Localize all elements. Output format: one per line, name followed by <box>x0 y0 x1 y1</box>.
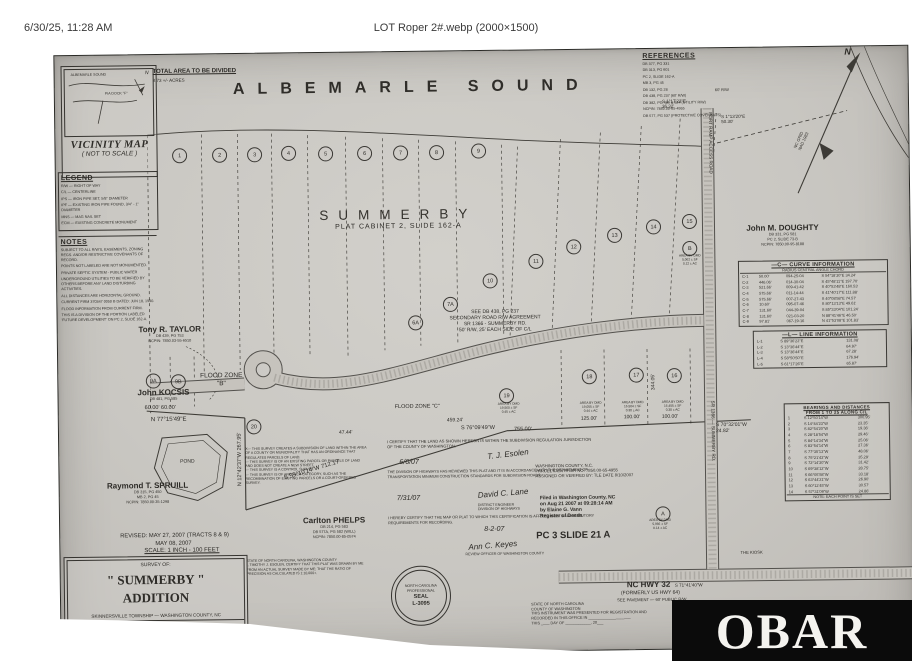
lot-circle: 8 <box>429 145 444 160</box>
surveyor-license: PROFESSIONAL LAND SURVEYOR L-3095 <box>68 633 244 640</box>
annotation: 60' R/W <box>715 88 729 93</box>
annotation: FLOOD ZONE "B" <box>190 372 252 389</box>
note-item: PRIVATE SEPTIC SYSTEM - PUBLIC WATER <box>61 270 155 276</box>
lot-circle: 10 <box>483 273 498 288</box>
lot-circle: 9 <box>471 143 486 158</box>
north-label: N <box>844 47 851 58</box>
annotation: S 1°17'23"E 36.32' <box>662 99 686 110</box>
annotation: FLOOD ZONE "C" <box>395 404 440 411</box>
notes-title: NOTES <box>61 238 155 246</box>
centerline-table: BEARINGS AND DISTANCES FROM 1 TO 25 ALON… <box>784 402 891 501</box>
annotation: N 12°42'37"W 267.95' <box>236 414 244 504</box>
references-title: REFERENCES <box>642 51 794 60</box>
subdivision-name: " SUMMERBY " <box>68 571 244 589</box>
vicinity-road-label: PIA DOCK "F" <box>105 91 128 95</box>
lot-circle: 6 <box>357 146 372 161</box>
annotation: DISTRICT ENGINEER DIVISION OF HIGHWAYS <box>478 503 520 512</box>
John KOCSIS: John KOCSIS DB 481, PG 585 <box>113 387 213 402</box>
vicinity-map-title: VICINITY MAP <box>64 139 154 151</box>
lot-circle: 20 <box>246 419 261 434</box>
annotation: N 77°15'49"E <box>151 417 187 425</box>
annotation: 47.44' <box>339 430 353 436</box>
legend-item: ECM — EXISTING CONCRETE MONUMENT <box>61 220 155 226</box>
filed-stamp: Filed in Washington County, NC on Aug 21… <box>540 494 616 519</box>
annotation: AREA BY DMD 5,966 ± SF 0.14 ± AC <box>638 519 682 531</box>
legend-item: IPF — EXISTING IRON PIPE FOUND, 3/4" - 1… <box>61 202 155 213</box>
lot-circle: 17 <box>629 368 644 383</box>
owner-details: DB 315, PG 450 MB 2, PG 45 NCPIN: 7850.0… <box>98 490 198 506</box>
John M. DOUGHTY: John M. DOUGHTY DB 331, PG 581 PC 2, SLI… <box>732 223 832 248</box>
legend-item: MNS — MAG NAIL SET <box>61 214 155 220</box>
title-block: SURVEY OF: " SUMMERBY " ADDITION SKINNER… <box>63 555 248 659</box>
owner-details: DB 439, PG 753 NCPIN: 7850.03-55-6510 <box>120 333 220 344</box>
table-note: NOTE: EACH POINT IS SET <box>787 493 889 499</box>
lot-circle: 7 <box>393 145 408 160</box>
road-agreement-note: SEE DB 438, PG 237 SECONDARY ROAD R/W AG… <box>397 308 592 335</box>
total-area-title: TOTAL AREA TO BE DIVIDED <box>153 68 237 76</box>
parcel-identifier-block: WASHINGTON COUNTY, N.C. PARCEL IDENTIFIE… <box>535 462 633 479</box>
annotation: X— THIS SURVEY CREATES A SUBDIVISION OF … <box>245 445 367 485</box>
annotation: 755.00' <box>514 426 532 433</box>
owner-details: DB 214, PG 583 DB 577A, PG 582 (WILL) NC… <box>284 524 384 540</box>
survey-of-label: SURVEY OF: <box>68 561 244 569</box>
scale-label: SCALE: 1 INCH - 100 FEET <box>144 547 219 555</box>
annotation: 7/31/07 <box>397 495 420 504</box>
plat-image[interactable]: ALBEMARLE SOUND PIA DOCK "F" N VICINITY … <box>53 45 912 657</box>
vicinity-sound-label: ALBEMARLE SOUND <box>71 73 107 77</box>
lot-circle: 15 <box>682 214 697 229</box>
note-item: ALL DISTANCES ARE HORIZONTAL GROUND. <box>61 293 155 299</box>
legend-item: IPS — IRON PIPE SET, 5/8" DIAMETER <box>61 196 155 202</box>
subdivision-name-2: ADDITION <box>68 589 244 607</box>
print-filename: LOT Roper 2#.webp (2000×1500) <box>0 22 912 34</box>
annotation: S 1°13'20"E 50.30' <box>721 114 745 125</box>
line-table: —L— LINE INFORMATION L-1S 89°36'22"E131.… <box>753 329 887 369</box>
annotation: AREA BY DMD 16,504 ± SF 0.38 ± AC <box>611 401 655 413</box>
lot-circle: 9B <box>171 374 186 389</box>
township-label: SKINNERSVILLE TOWNSHIP — WASHINGTON COUN… <box>68 612 244 622</box>
pc-slide-label: PC 3 SLIDE 21 A <box>536 529 610 541</box>
annotation: (FORMERLY US HWY 64) <box>621 590 680 597</box>
annotation: 6/6/07 <box>399 459 419 468</box>
annotation: 100.00' <box>624 414 640 420</box>
lot-circle: 2 <box>212 148 227 163</box>
lot-circle: 13 <box>607 228 622 243</box>
vicinity-north-label: N <box>145 70 149 76</box>
annotation: S 70°32'01"W 24.82' <box>716 422 747 435</box>
vicinity-map: ALBEMARLE SOUND PIA DOCK "F" N VICINITY … <box>60 65 157 178</box>
annotation: AREA BY DMD 19,055 ± SF 0.44 ± AC <box>569 401 613 413</box>
reference-item: DB 577, PG 537 (PROTECTIVE COVENANTS) <box>643 112 795 119</box>
lot-circle: 9A <box>146 373 161 388</box>
note-item: UNDERGROUND UTILITIES TO BE VERIFIED BY … <box>61 276 155 292</box>
annotation: AREA BY DMD 19,560 ± SF 0.45 ± AC <box>487 402 531 414</box>
lot-circle: 1 <box>172 148 187 163</box>
notes-list: SUBJECT TO ALL R/W'S, EASEMENTS, ZONING … <box>61 247 156 323</box>
note-item: FLOOD INFORMATION FROM CURRENT FIRM. <box>61 306 155 312</box>
references-box: REFERENCES DB 377, PG 331DB 313, PG 601P… <box>642 51 795 120</box>
annotation: 459.24' <box>447 417 463 423</box>
revised-date: REVISED: MAY 27, 2007 (TRACTS 8 & 9) <box>120 532 229 540</box>
curve-table: —C— CURVE INFORMATION RADIUS CENTRAL ANG… <box>738 259 889 327</box>
Tony R. TAYLOR: Tony R. TAYLOR DB 439, PG 753 NCPIN: 785… <box>120 324 220 344</box>
annotation: AREA BY DMD 5,062 ± SF 0.12 ± AC <box>670 254 710 266</box>
lot-circle: 12 <box>566 239 581 254</box>
notes-box: NOTES SUBJECT TO ALL R/W'S, EASEMENTS, Z… <box>59 235 158 327</box>
legend-item: R/W — RIGHT OF WAY <box>61 183 155 189</box>
annotation: AREA BY DMD 16,455 ± SF 0.38 ± AC <box>651 400 695 412</box>
vicinity-map-subtitle: ( NOT TO SCALE ) <box>65 150 155 158</box>
lot-circle: 11 <box>528 254 543 269</box>
legend-list: R/W — RIGHT OF WAYC/L — CENTERLINEIPS — … <box>61 183 156 227</box>
annotation: 8-2-07 <box>484 526 504 535</box>
lot-circle: 16 <box>667 368 682 383</box>
nc-hwy-32-label: NC HWY 32 <box>627 580 671 590</box>
lot-circle: 4 <box>281 146 296 161</box>
legend-item: C/L — CENTERLINE <box>61 189 155 195</box>
annotation: 125.00' <box>581 416 597 422</box>
annotation: STATE OF NORTH CAROLINA, WASHINGTON COUN… <box>247 557 369 576</box>
lot-circle: 5 <box>318 146 333 161</box>
table-row: C-997.81'067-19-16N 41°53'08"E 101.83' <box>741 317 887 324</box>
obar-watermark: OBAR <box>672 600 912 661</box>
annotation: 100.00' <box>662 414 678 420</box>
note-item: THIS IS A DIVISION OF THE PORTION LABELE… <box>62 312 156 323</box>
annotation: S 71°41'40"W <box>675 582 703 588</box>
note-item: SUBJECT TO ALL R/W'S, EASEMENTS, ZONING … <box>61 247 155 263</box>
image-print-view: { "header": { "datetime": "6/30/25, 11:2… <box>0 0 912 661</box>
legend-title: LEGEND <box>61 174 155 182</box>
table-row: L-5S 61°17'26"E65.87' <box>755 360 885 367</box>
registration-block: STATE OF NORTH CAROLINA COUNTY OF WASHIN… <box>531 601 647 626</box>
Raymond T. SPRUILL: Raymond T. SPRUILL DB 315, PG 450 MB 2, … <box>98 481 198 506</box>
owner-details: DB 331, PG 581 PC 2, SLIDE 73-B NCPIN: 7… <box>733 232 833 248</box>
lot-circle: 14 <box>646 219 661 234</box>
lot-circle: 3 <box>247 147 262 162</box>
Carlton PHELPS: Carlton PHELPS DB 214, PG 583 DB 577A, P… <box>284 515 384 540</box>
annotation: S 76°09'49"W <box>461 425 495 432</box>
note-item: POINTS NOT LABELED ARE NOT MONUMENTED. <box>61 263 155 269</box>
annotation: THE KIOSK <box>740 550 762 555</box>
note-item: CURRENT FIRM 370347 0050 B DATED: JUN 18… <box>61 299 155 305</box>
lot-circle: 18 <box>582 369 597 384</box>
vicinity-inset-map <box>65 69 152 134</box>
annotation: POND <box>167 458 207 465</box>
annotation: 60.00' 60.00' <box>145 405 176 412</box>
legend-box: LEGEND R/W — RIGHT OF WAYC/L — CENTERLIN… <box>58 171 159 231</box>
